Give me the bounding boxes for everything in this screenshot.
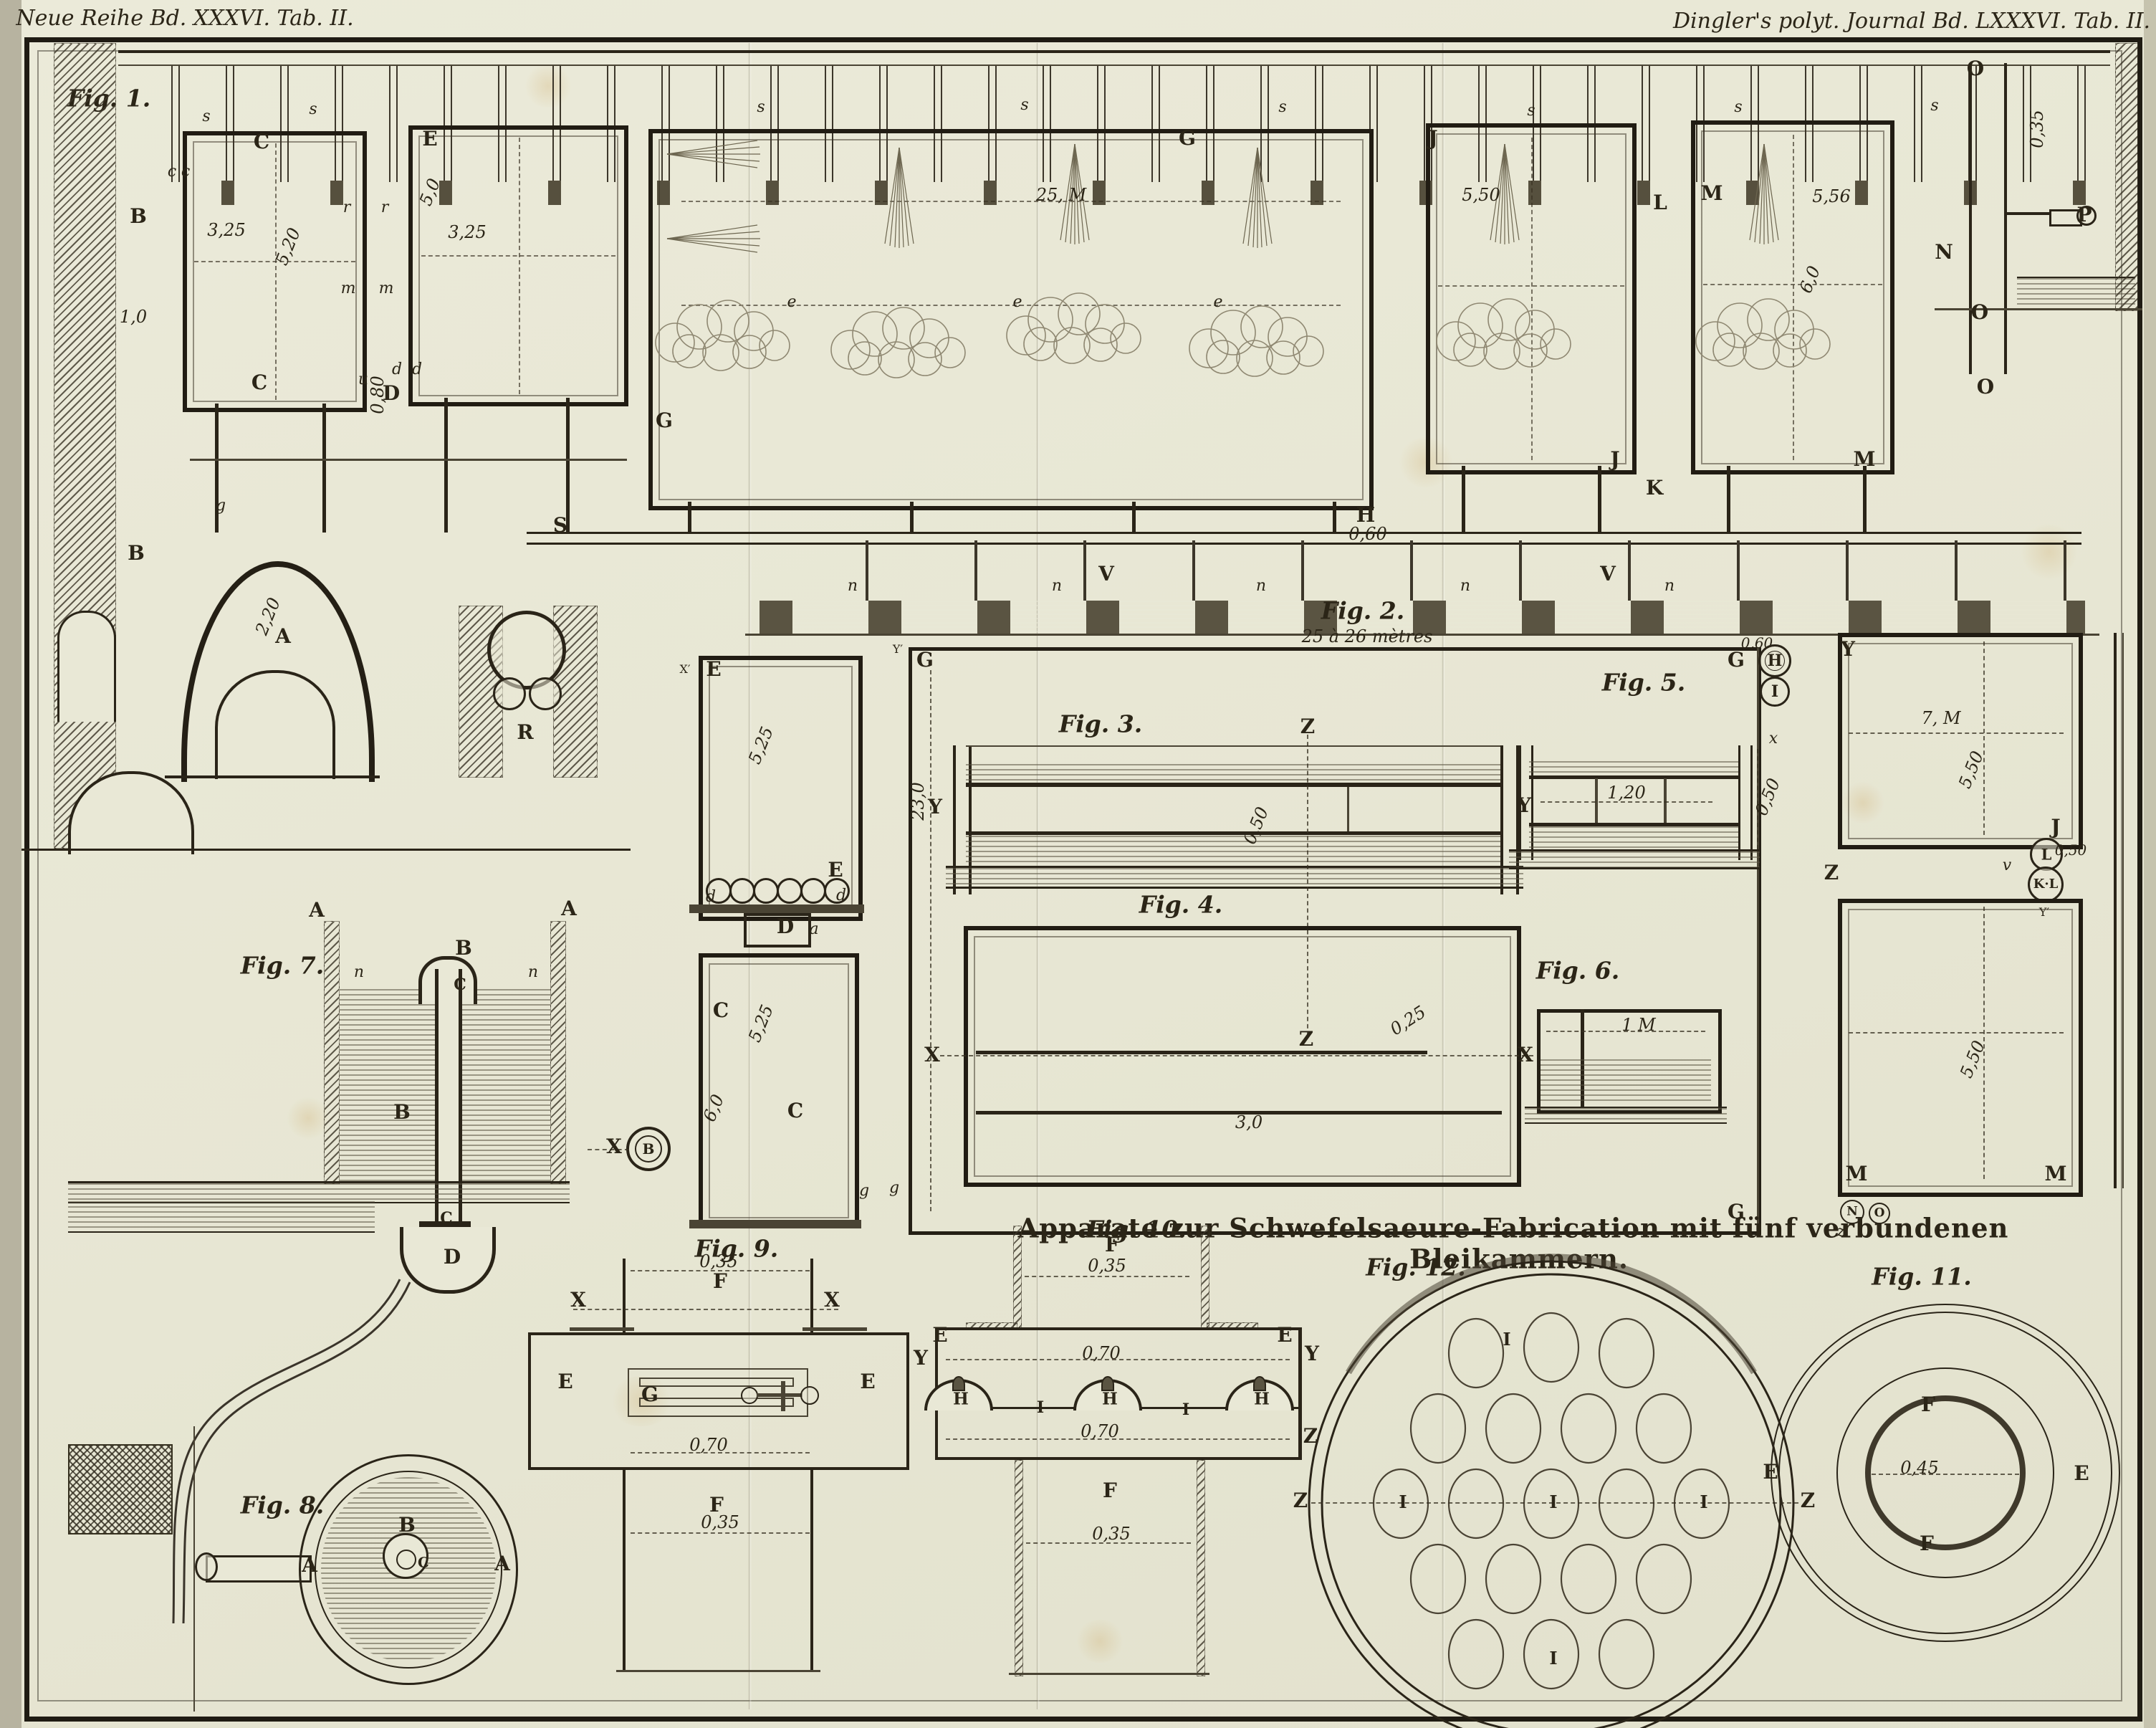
figure-label-2: Fig. 2. [1321,599,1404,623]
part-letter: J [2051,817,2060,837]
trough-bottom-band [1529,826,1738,849]
part-letter: s [309,102,317,118]
tower-tank-C [699,953,859,1228]
part-letter: n [848,578,858,594]
dim-label: 0,35 [701,1514,739,1531]
part-letter: I [1549,1494,1557,1511]
section-line-X [940,1055,1533,1056]
ring-inner [1865,1395,2026,1550]
part-letter: n [1256,578,1266,594]
part-letter: L [1653,193,1667,213]
lead-chamber-E [408,125,628,406]
dim-line [1872,1474,2019,1475]
dim-label: 3,25 [448,224,486,241]
damper-rail [639,1378,794,1387]
part-letter: c [181,164,190,180]
part-letter: X [824,1290,840,1310]
dim-label: 0,60 [1348,525,1386,543]
duct-wall [623,1259,626,1333]
trough-plan-line [976,1051,1427,1054]
tank-tray [689,1220,861,1228]
part-letter: Y′ [893,644,903,655]
part-letter: M [1854,449,1876,469]
center-fitting-C [396,1550,416,1570]
part-letter: C [251,373,267,393]
trough-divider [1347,787,1349,831]
part-letter: s [1278,100,1286,115]
part-letter: N [1935,242,1953,262]
trough-base [1509,849,1760,869]
part-letter: K [1646,478,1663,498]
dim-line [1983,641,1985,835]
chamber-leg [688,502,691,533]
part-letter: H [1356,505,1375,525]
trough-base [946,866,1523,889]
part-letter: u [358,372,368,388]
part-letter: S [553,515,567,535]
steam-cloud [1179,285,1336,378]
part-letter: s [1734,100,1742,115]
part-letter: M [2045,1164,2067,1184]
part-letter: E [1763,1462,1778,1482]
part-letter: F [713,1271,727,1292]
part-letter: R [517,722,533,743]
part-letter: C [418,1555,429,1570]
part-letter: G [641,1385,658,1405]
part-letter: I [1549,1650,1557,1667]
furnace-base [165,775,380,778]
part-letter: n [1052,578,1062,594]
paper-stain [287,1097,330,1140]
floor-channel-step [68,1201,375,1233]
part-letter: F [1105,1235,1119,1255]
part-letter: g [889,1180,899,1196]
vessel-wall [324,921,340,1184]
part-letter: r [343,200,351,216]
boiler-eye [493,677,526,710]
tank-base [1525,1107,1727,1124]
duct-wall-hatch [1013,1226,1022,1329]
part-letter: n [354,965,364,980]
figure-label-10: Fig. 10. [1086,1218,1186,1241]
part-letter: C [440,1211,453,1226]
part-letter: d [412,362,422,378]
part-letter: Z [1300,717,1315,737]
wall-arch-opening [57,611,116,722]
acid-jet [878,143,921,251]
dim-label: 23,0 [909,782,926,820]
part-letter: a [809,922,818,937]
part-letter: C [713,1001,729,1021]
part-letter: E [860,1372,875,1392]
masonry-block [68,1444,173,1534]
part-letter: Y [1841,639,1855,659]
crank-shaft [757,1393,802,1397]
duct-wall [623,1470,626,1672]
acid-jet [1236,143,1279,251]
part-letter: H [1102,1391,1118,1408]
dim-label: 0,35 [2028,110,2046,148]
duct-wall [810,1259,813,1333]
chamber-leg [1863,466,1867,533]
part-letter: e [1213,295,1222,310]
trough-divider [1595,778,1598,823]
part-letter: m [379,281,394,297]
trough-divider [1664,778,1667,823]
dim-label: 0,70 [689,1436,727,1453]
trough-bottom-band [966,836,1500,864]
dim-line [1849,732,2064,734]
flue-ground [1935,308,2142,310]
exit-flue [2004,63,2007,374]
part-letter: V [1098,564,1114,584]
dim-label: 0,35 [1088,1257,1126,1274]
chamber-leg [444,398,448,533]
part-letter: C [454,977,466,993]
lead-chamber-C [183,131,367,412]
duct-ledge [802,1327,867,1331]
part-letter: r [381,200,389,216]
part-letter: M [1701,183,1723,204]
plan-inner-wall [1757,647,1759,1228]
part-letter: H [953,1391,969,1408]
part-letter: n [1460,578,1470,594]
part-letter: H [1254,1391,1270,1408]
dim-label: 1 M [1621,1016,1655,1034]
roller [753,878,779,904]
part-letter: X [606,1137,622,1157]
figure-label-4: Fig. 4. [1139,893,1222,917]
part-letter: g [859,1183,869,1199]
part-letter: V [1600,564,1616,584]
floor-channel [68,1181,570,1203]
dim-label: 3,25 [207,221,245,239]
steam-cloud [820,287,978,380]
dim-line [1849,1032,2064,1034]
part-letter: G [1728,650,1745,670]
part-letter: X′ [679,664,690,675]
part-letter: I [1700,1494,1707,1511]
tank-liquid [1541,1059,1711,1104]
figure-label-7: Fig. 7. [241,954,324,978]
boiler-eye [529,677,562,710]
figure-label-3: Fig. 3. [1059,712,1142,736]
part-letter: F [1103,1481,1117,1501]
part-letter: E [706,659,721,679]
part-letter: J [1428,128,1437,148]
part-letter: B [643,1142,655,1156]
chamber-leg [1132,502,1136,533]
part-letter: g [216,498,226,514]
trough-rim [1529,775,1738,779]
part-letter: I [1503,1331,1510,1348]
part-letter: J [1610,449,1619,469]
right-wall-hatch [2115,43,2138,311]
dim-label: 0,70 [1081,1423,1118,1440]
dim-line [631,1532,810,1534]
part-letter: n [1664,578,1675,594]
dim-label: 0,45 [1900,1459,1938,1476]
furnace-arch-inner [215,670,335,779]
ground-line [21,849,631,851]
part-letter: c [168,164,176,180]
part-letter: v [2003,858,2011,874]
part-letter: F [1921,1395,1935,1415]
drop-pipes [760,540,2085,601]
dim-label: 0,50 [2055,843,2087,857]
part-letter: H [1768,653,1783,669]
dim-label: 7, M [1921,710,1960,727]
part-letter: K·L [2033,878,2059,891]
part-letter: A [309,900,325,920]
steam-cloud [1426,278,1584,371]
fitting-stub [2007,212,2050,215]
scan-edge-right [2144,0,2156,1728]
part-letter: s [757,100,765,115]
chamber-J-plan [1838,633,2083,849]
part-letter: X [924,1045,940,1065]
steam-torch [663,221,763,257]
exit-flue [1969,63,1972,374]
part-letter: E [422,129,437,149]
steam-torch [663,136,763,172]
part-letter: Z [1824,863,1839,883]
part-letter: Y [914,1348,928,1368]
roller [777,878,802,904]
dim-label: 0,70 [1082,1345,1120,1362]
part-letter: s [1020,97,1028,113]
duct-wall-hatch [1201,1226,1209,1329]
part-letter: G [916,650,934,670]
chamber-leg [1333,502,1336,533]
crank-pivot [741,1387,758,1404]
dim-label: 0,35 [699,1253,737,1270]
part-letter: I [1182,1402,1189,1418]
part-letter: m [341,281,356,297]
part-letter: I [1037,1400,1044,1416]
part-letter: B [130,206,147,226]
part-letter: B [393,1102,411,1122]
engraving-plate: Neue Reihe Bd. XXXVI. Tab. II. Dingler's… [0,0,2156,1728]
dim-label: 0,60 [1741,636,1773,650]
paper-stain [1075,1620,1125,1663]
steam-cloud [1685,278,1843,371]
plate-caption-left: Neue Reihe Bd. XXXVI. Tab. II. [16,8,353,29]
trough-top-band [1529,761,1738,775]
dim-label: 3,0 [1235,1114,1263,1131]
part-letter: d [392,362,402,378]
figure-label-8: Fig. 8. [241,1494,324,1517]
chamber-leg [1727,466,1730,533]
part-letter: G [656,411,673,431]
part-letter: G [1179,128,1196,148]
trough-end-post [1738,745,1753,860]
figure-label-5: Fig. 5. [1602,671,1685,694]
dim-label: 1,20 [1607,784,1645,801]
chamber-leg [910,502,914,533]
crank-handle [781,1381,785,1411]
part-letter: D [777,917,794,937]
part-letter: s [1527,103,1535,119]
part-letter: F [1920,1534,1934,1554]
steam-cloud [996,272,1154,366]
part-letter: O [1971,302,1988,323]
part-letter: A [275,626,291,646]
dim-label: 5,50 [1462,186,1500,204]
part-letter: O [1977,377,1994,397]
duct-ledge [570,1327,634,1331]
part-letter: L [2041,847,2052,862]
part-letter: B [398,1515,416,1535]
part-letter: Y [928,797,942,817]
part-letter: X [570,1290,586,1310]
part-letter: M [1846,1164,1868,1184]
section-line [930,670,931,1211]
part-letter: B [128,543,145,563]
duct-wall [528,1332,531,1470]
part-letter: x [1769,731,1778,747]
part-letter: C [787,1101,803,1121]
dim-label: 25 à 26 mètres [1302,628,1433,645]
figure-label-11: Fig. 11. [1872,1265,1971,1289]
part-letter: E [828,860,843,880]
duct-wall [810,1470,813,1672]
section-line-X [573,1309,838,1310]
duct-wall [1298,1327,1302,1460]
acid-jet [1743,140,1786,247]
part-letter: E [557,1372,572,1392]
part-letter: n [528,965,538,980]
chamber-leg [1598,466,1601,533]
part-letter: E [932,1325,947,1345]
roller [800,878,826,904]
sheet-wall [2122,633,2124,1188]
crank-knob [800,1386,819,1405]
masonry-wall-hatch [54,43,116,849]
part-letter: E [1277,1325,1292,1345]
vessel-wall [550,921,566,1184]
chamber-M-plan [1838,899,2083,1197]
boiler-vessel [487,611,566,689]
figure-label-6: Fig. 6. [1536,959,1619,983]
part-letter: d [836,888,846,904]
dim-label: 0,80 [369,376,386,414]
trough-top-edge [966,745,1500,747]
dim-label: 1,0 [120,308,147,325]
part-letter: e [787,295,796,310]
part-letter: A [561,899,577,919]
part-letter: s [202,109,210,125]
duct-wall [906,1332,909,1470]
steam-cloud [645,280,802,373]
sheet-wall [2114,633,2117,1188]
plate-caption-right: Dingler's polyt. Journal Bd. LXXXVI. Tab… [1673,11,2150,32]
duct-wall [935,1457,1302,1460]
damper-rail [639,1398,794,1407]
part-letter: d [706,889,716,905]
dim-label: 25, M [1036,186,1086,204]
dim-label: 0,35 [1092,1525,1130,1542]
chamber-leg [322,404,326,533]
inlet-pipe [206,1555,312,1583]
roof-beam [118,50,2110,53]
duct-wall [528,1332,909,1335]
duct-end [1009,1673,1209,1675]
trough-rim [966,831,1500,835]
part-letter: E [2074,1464,2089,1484]
support-rail [190,459,627,461]
dim-label: 5,56 [1812,188,1850,205]
chamber-leg [566,398,570,533]
part-letter: C [254,132,269,152]
part-letter: Z [1293,1491,1308,1511]
part-letter: B [455,938,472,958]
part-letter: P [2076,205,2092,225]
part-letter: s [1930,98,1938,114]
part-letter: O [1967,59,1984,79]
duct-wall [528,1467,909,1470]
part-letter: D [444,1247,461,1267]
part-letter: I [1771,684,1778,700]
scan-edge-left [0,0,21,1728]
duct-wall-hatch [1197,1460,1205,1676]
trough-top-band [966,764,1500,783]
part-letter: A [494,1554,510,1574]
duct-wall [935,1327,1302,1330]
trough-rim [966,783,1500,787]
chamber-leg [1462,466,1465,533]
duct-end [616,1670,820,1672]
part-letter: I [1399,1494,1407,1511]
part-letter: e [1012,295,1022,310]
part-letter: A [302,1555,317,1575]
roller [729,878,755,904]
duct-wall-hatch [1015,1460,1023,1676]
pipe-mouth [195,1552,218,1581]
dim-line [1025,1276,1189,1277]
part-letter: X [1518,1045,1533,1065]
trough-plan [964,926,1521,1187]
